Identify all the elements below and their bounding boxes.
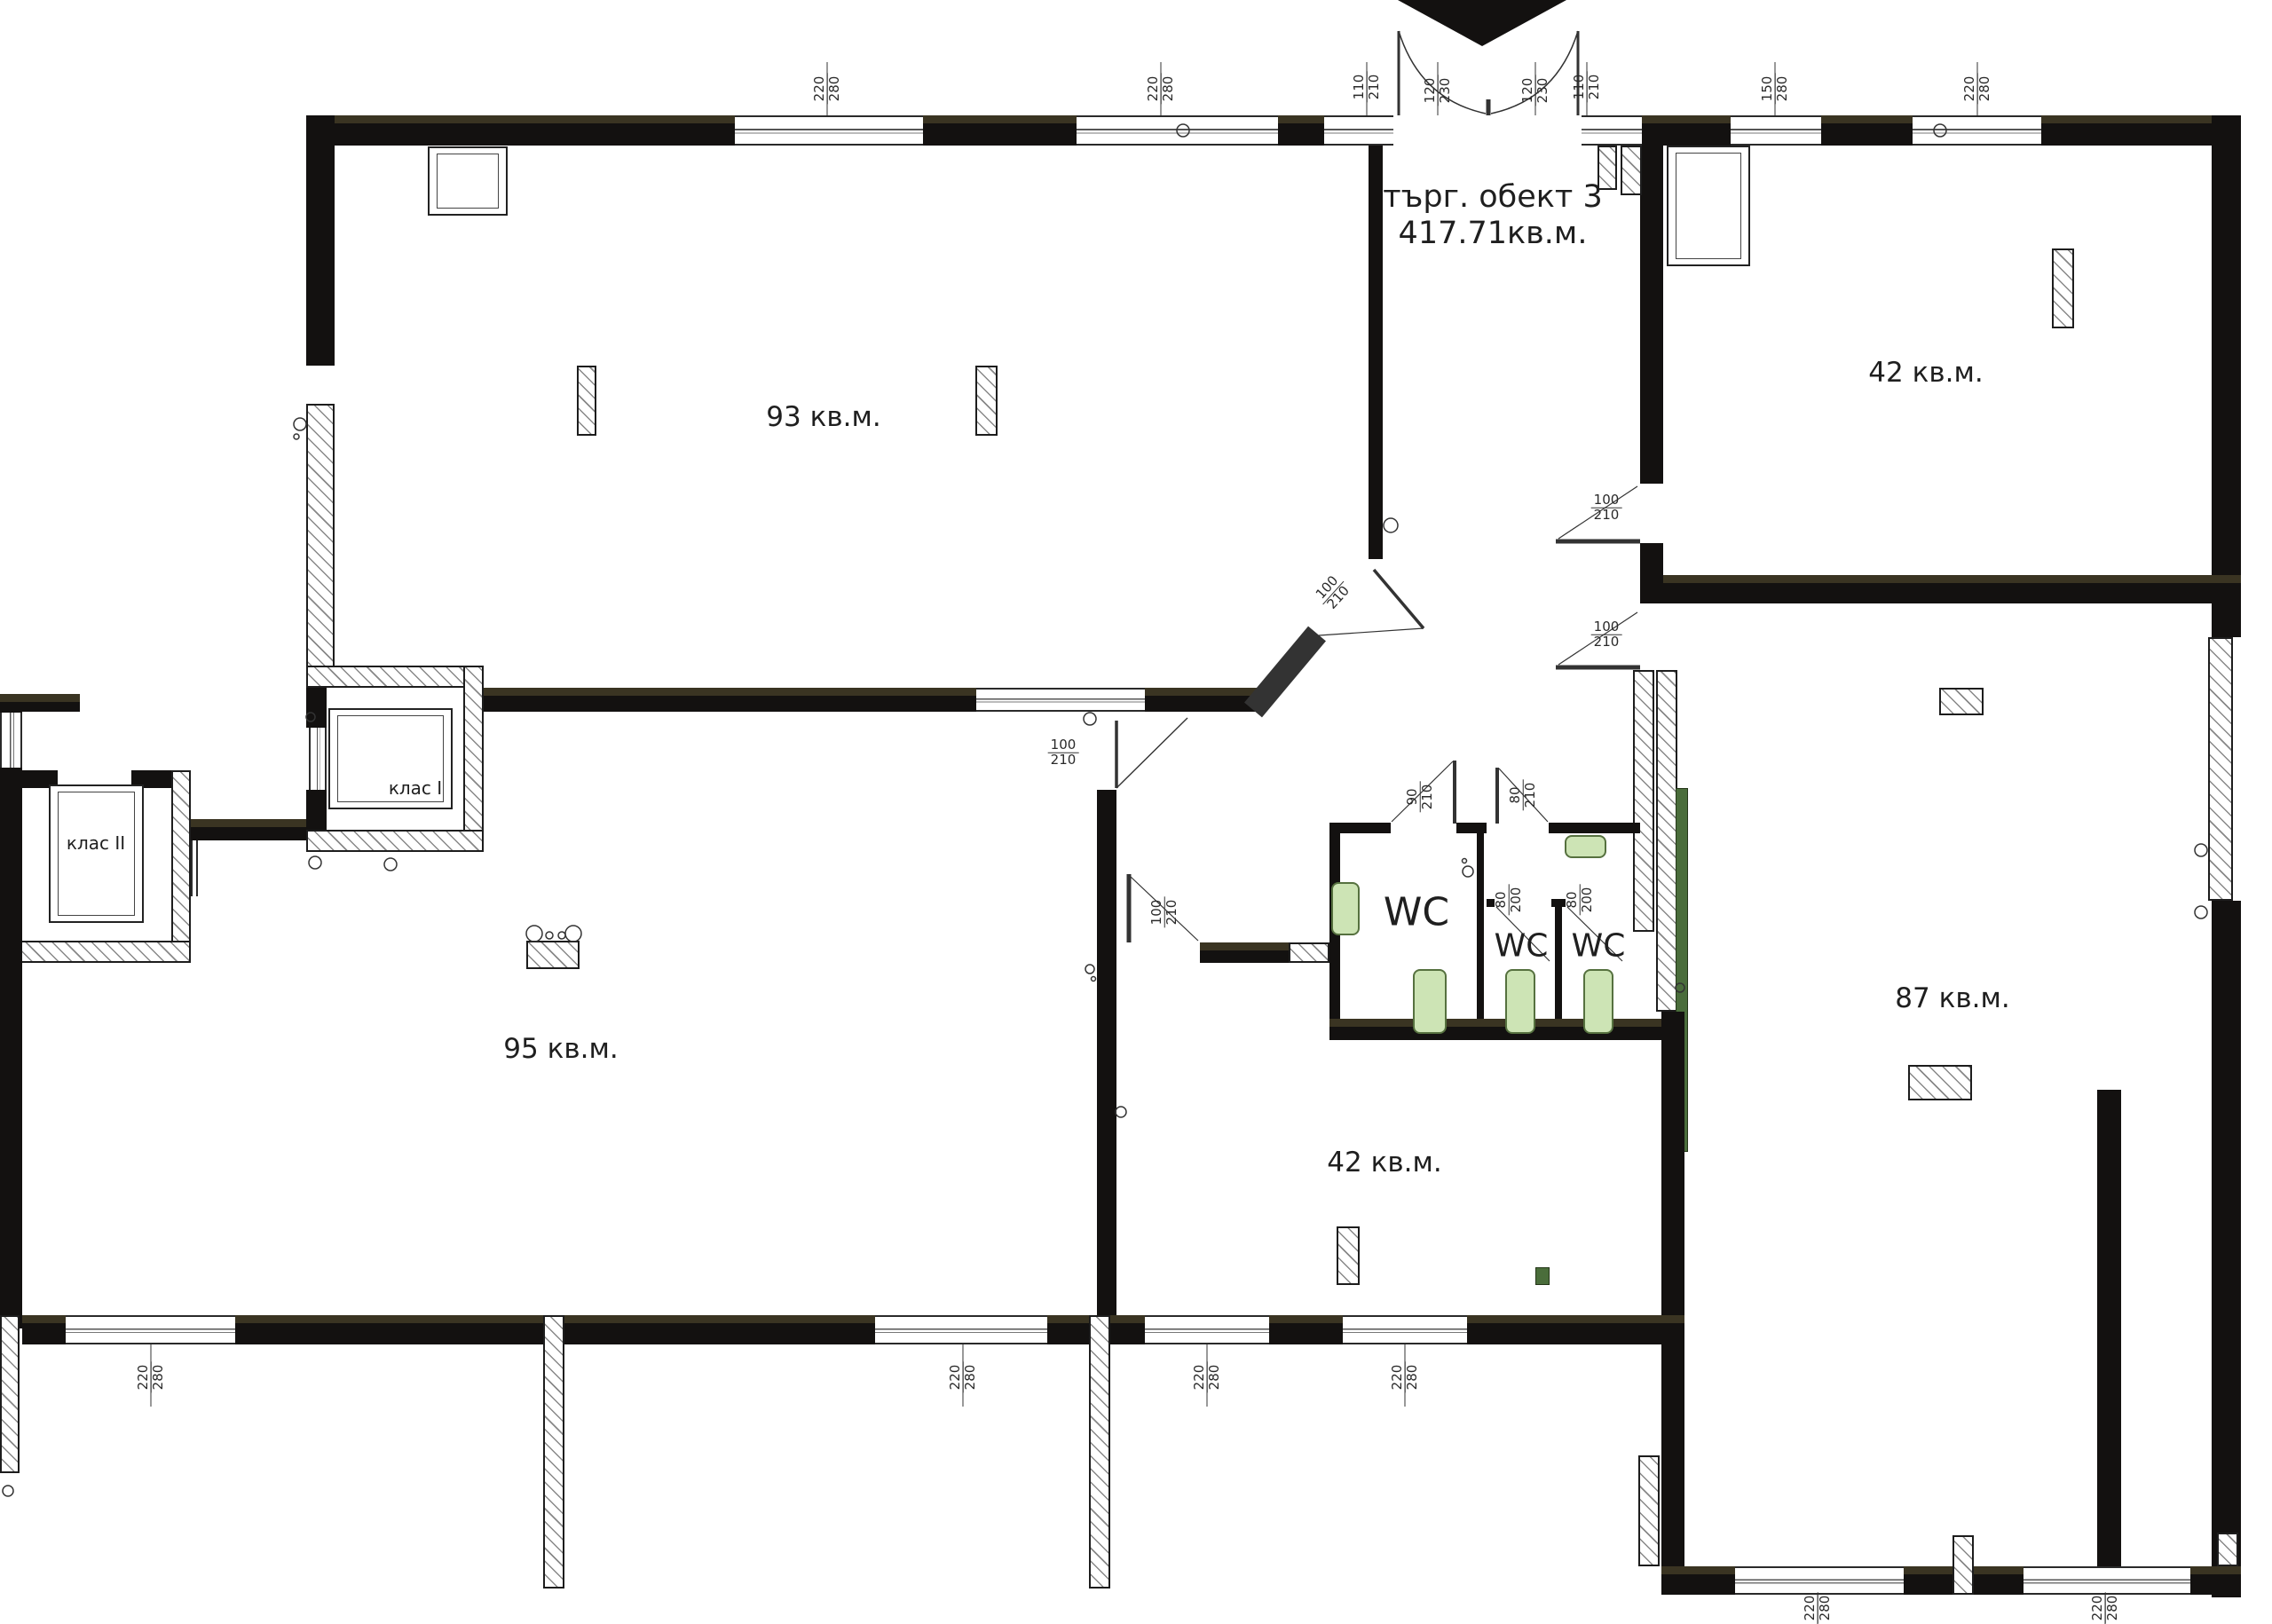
sink [1331,882,1360,935]
wall-87-bottom [1661,1566,1735,1595]
counter [526,941,580,969]
wc-wall [1477,823,1484,1031]
elevator-car [58,792,135,916]
dimension-label: 100210 [1591,493,1622,523]
window [1731,115,1821,146]
pier [543,1315,564,1589]
dimension-label: 220280 [949,1362,978,1393]
hinge-circle [2195,906,2207,918]
wall-bottom [1269,1315,1343,1344]
shaft-1 [306,688,327,728]
wall-95-42 [1097,790,1116,1328]
dimension-label: 110210 [1573,72,1602,103]
pier [1638,1455,1660,1566]
wall-right-hatched [2208,637,2233,901]
wall-87-interior [2097,1090,2121,1566]
duct [437,154,499,209]
toilet [1413,969,1447,1034]
shaft-1-door [309,728,327,790]
window [735,115,923,146]
window [66,1315,235,1344]
shaft-2 [4,941,191,963]
wall-42tr-bottom [1640,575,2241,603]
pillar [1908,1065,1972,1100]
hinge-circle [1384,518,1398,532]
pillar [577,366,596,436]
wall-left-stub [0,694,80,712]
wc-wall [1555,899,1562,1031]
pillar [1621,146,1642,195]
window [1324,115,1393,146]
pillar [1337,1226,1360,1285]
dimension-label: 150280 [1761,74,1790,105]
pillar [1939,688,1984,715]
wc-wall [1549,823,1640,833]
wall-diagonal [1253,634,1317,710]
room-87-label: 87 кв.м. [1895,982,2009,1014]
dimension-label: 80200 [1495,885,1524,916]
dimension-label: 100210 [1591,620,1622,650]
wall-corridor-south [1200,942,1289,963]
hinge-circle [294,434,299,439]
hinge-circle [1085,965,1094,974]
shaft-1 [306,830,484,852]
window-interior [976,688,1145,712]
wall-bottom [22,1315,66,1344]
elevator-1-label: клас I [389,777,442,799]
wall-corridor-west [1369,146,1383,559]
dimension-label: 100210 [1150,897,1179,928]
wall-corridor-east [1640,543,1663,603]
hinge-circle [558,932,565,939]
wall-93-west [306,115,335,366]
dimension-label: 220280 [2091,1593,2120,1624]
dimension-label: 100210 [1048,738,1079,768]
entrance-arrow [1398,0,1566,46]
hinge-circle [1116,1107,1126,1117]
hinge-circle [1092,977,1096,981]
room-42-top-label: 42 кв.м. [1868,357,1983,389]
wall-right [2212,901,2241,1597]
plan-linework [0,0,2272,1624]
pier [1089,1315,1110,1589]
window [1077,115,1278,146]
wall-93-95 [484,688,976,712]
wall-bottom [1467,1315,1684,1344]
wall-top [923,115,1078,146]
pillar [975,366,998,436]
window [1582,115,1642,146]
dimension-label: 220280 [1193,1362,1222,1393]
wall-connector [191,819,306,840]
window [1913,115,2041,146]
dimension-label: 80200 [1566,885,1595,916]
dimension-label: 110210 [1353,72,1382,103]
hinge-circle [546,932,553,939]
wc-middle-label: WC [1495,928,1549,965]
hinge-circle [526,926,542,942]
sink [1565,835,1606,858]
hinge-circle [1084,713,1096,725]
window [1735,1566,1904,1595]
shaft-1 [463,666,484,852]
duct [1676,153,1741,259]
pier [0,1315,20,1473]
pillar [1952,1535,1974,1595]
window [2023,1566,2190,1595]
dimension-label: 220280 [1391,1362,1420,1393]
hinge-circle [2195,844,2207,856]
door-leaf [1374,570,1424,628]
pillar [2052,248,2074,328]
wall-93-95 [1145,688,1260,712]
dimension-label: 80210 [1509,780,1538,811]
hinge-circle [3,1486,13,1496]
window [1145,1315,1269,1344]
window [1343,1315,1467,1344]
window [0,713,22,768]
green-marker [1535,1267,1550,1285]
dimension-label: 220280 [1147,74,1176,105]
pillar [2217,1533,2238,1566]
door-swing [1319,628,1424,635]
wall-corridor-east [1640,146,1663,484]
floor-plan: 93 кв.м.95 кв.м.42 кв.м.42 кв.м.87 кв.м.… [0,0,2272,1624]
wall-87-left [1661,1012,1684,1344]
wall-87-left [1661,1344,1684,1566]
wall-hatched [1656,670,1677,1012]
object-area-label: 417.71кв.м. [1399,216,1588,251]
wall-hatched [1633,670,1654,932]
wall-top [1278,115,1324,146]
dimension-label: 90210 [1406,782,1435,813]
wall-top [306,115,737,146]
dimension-label: 220280 [1803,1593,1833,1624]
room-93-label: 93 кв.м. [766,401,880,433]
shaft-2 [171,770,191,963]
wall-top [1642,115,1731,146]
hinge-circle [1463,866,1473,877]
wall-right [2212,115,2241,637]
room-42-bottom-label: 42 кв.м. [1327,1147,1441,1179]
toilet [1505,969,1535,1034]
wall-left [0,694,22,1328]
hinge-circle [384,858,397,871]
hinge-circle [294,418,306,430]
object-title-label: търг. обект 3 [1383,179,1602,215]
window [875,1315,1047,1344]
hinge-circle [565,926,581,942]
hinge-circle [1463,859,1467,863]
shaft-1 [306,790,327,830]
dimension-label: 100210 [1312,572,1353,613]
wc-right-label: WC [1572,928,1626,965]
room-95-label: 95 кв.м. [503,1033,618,1065]
wall-hatched [1289,942,1329,963]
toilet [1583,969,1613,1034]
shaft-1 [306,666,484,688]
dimension-label: 220280 [813,74,842,105]
wc-large-label: WC [1384,890,1449,935]
wall-top [1821,115,1913,146]
dimension-label: 220280 [1963,74,1992,105]
wall-87-bottom [2190,1566,2241,1595]
dimension-label: 120230 [1521,75,1550,106]
door-swing [1116,718,1187,788]
dimension-label: 220280 [137,1362,166,1393]
elevator-2-label: клас II [67,832,125,854]
hinge-circle [309,856,321,869]
dimension-label: 120230 [1424,75,1453,106]
wc-wall [1329,823,1391,833]
window-small [191,840,198,896]
wall-93-west-hatched [306,404,335,676]
